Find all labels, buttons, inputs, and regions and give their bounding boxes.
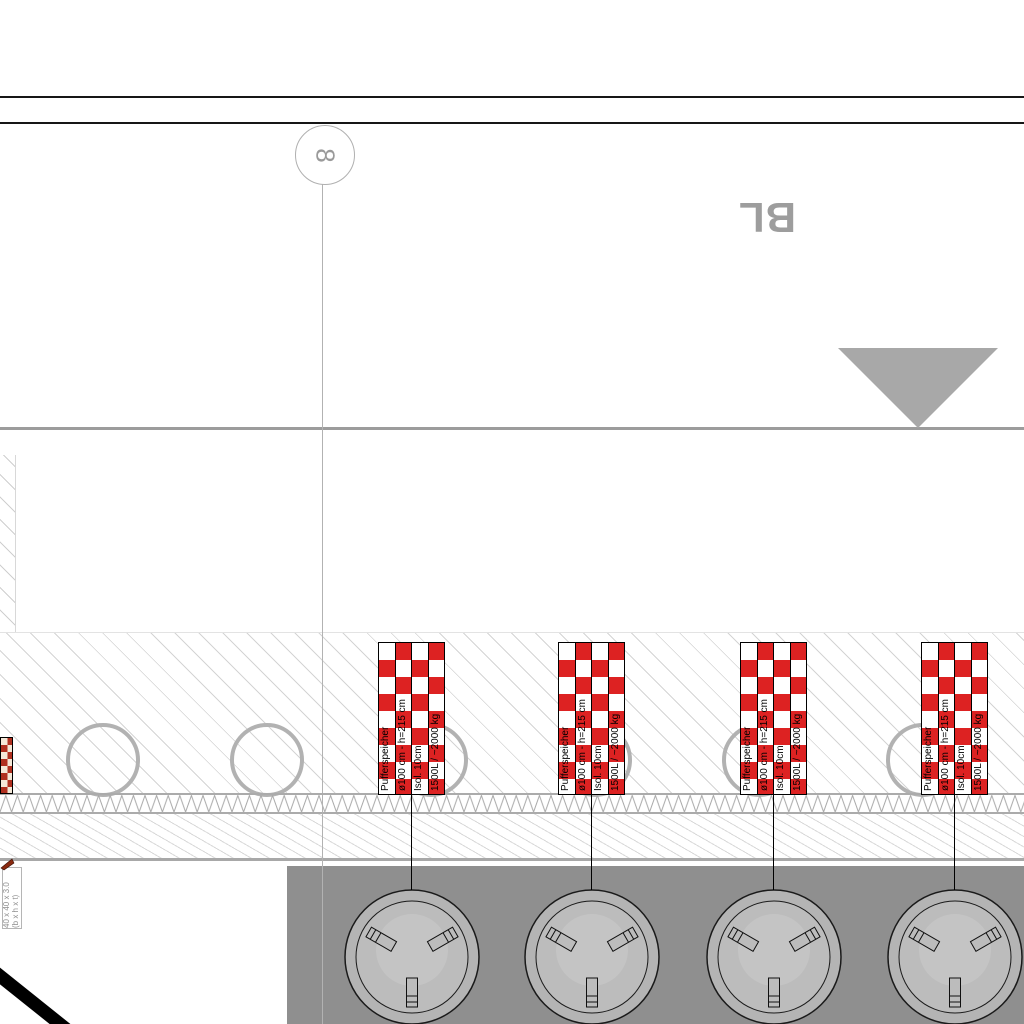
wall-hatch-strip xyxy=(0,455,16,632)
section-label-bl: BL xyxy=(738,193,796,241)
corner-diagonal-line xyxy=(0,940,130,1024)
tank-label-isol: Isol. 10cm xyxy=(592,643,608,794)
grid-marker-label: 8 xyxy=(310,148,341,162)
buffer-tank-plan-1 xyxy=(342,887,482,1024)
tank-label-size: ø100 cm - h=215 cm xyxy=(939,643,955,794)
angle-leader-arrow-icon xyxy=(0,855,16,871)
tank-label-isol: Isol. 10cm xyxy=(955,643,971,794)
pipe-circle xyxy=(230,723,304,797)
tank-centerline xyxy=(591,642,592,890)
cad-drawing-canvas: 8 BL Pufferspeicher ø100 cm - h=215 cm I… xyxy=(0,0,1024,1024)
buffer-tank-plan-2 xyxy=(522,887,662,1024)
edge-tank-label xyxy=(0,737,13,794)
angle-dimension-legend: (b x h x t) xyxy=(12,868,21,928)
grid-axis-line-8 xyxy=(322,183,323,1024)
slab-bottom-line xyxy=(0,793,1024,795)
insulation-zigzag-band xyxy=(0,795,1024,812)
tank-label-size: ø100 cm - h=215 cm xyxy=(758,643,774,794)
tank-label-capacity: 1500L / ~2000 kg xyxy=(791,643,807,794)
tank-label-capacity: 1500L / ~2000 kg xyxy=(429,643,445,794)
section-line-upper xyxy=(0,96,1024,98)
buffer-tank-plan-3 xyxy=(704,887,844,1024)
tank-centerline xyxy=(411,642,412,890)
angle-dimension-label: 40 x 40 x 3.0 (b x h x t) xyxy=(2,867,22,929)
layer-bottom-line xyxy=(0,858,1024,861)
tank-label-name: Pufferspeicher xyxy=(741,643,757,794)
tank-label-isol: Isol. 10cm xyxy=(774,643,790,794)
pipe-circle xyxy=(66,723,140,797)
buffer-tank-plan-4 xyxy=(885,887,1024,1024)
tank-label-capacity: 1500L / ~2000 kg xyxy=(609,643,625,794)
grid-marker-bubble: 8 xyxy=(295,125,355,185)
tank-label-isol: Isol. 10cm xyxy=(412,643,428,794)
tank-label-name: Pufferspeicher xyxy=(559,643,575,794)
tank-label-name: Pufferspeicher xyxy=(922,643,938,794)
tank-label-name: Pufferspeicher xyxy=(379,643,395,794)
tank-label-size: ø100 cm - h=215 cm xyxy=(396,643,412,794)
tank-label-size: ø100 cm - h=215 cm xyxy=(576,643,592,794)
slab-hatch-area xyxy=(0,632,1024,794)
level-triangle-icon xyxy=(838,348,998,428)
screed-hatch-band xyxy=(0,814,1024,858)
tank-label-capacity: 1500L / ~2000 kg xyxy=(972,643,988,794)
tank-centerline xyxy=(773,642,774,890)
tank-centerline xyxy=(954,642,955,890)
section-line-lower xyxy=(0,122,1024,124)
